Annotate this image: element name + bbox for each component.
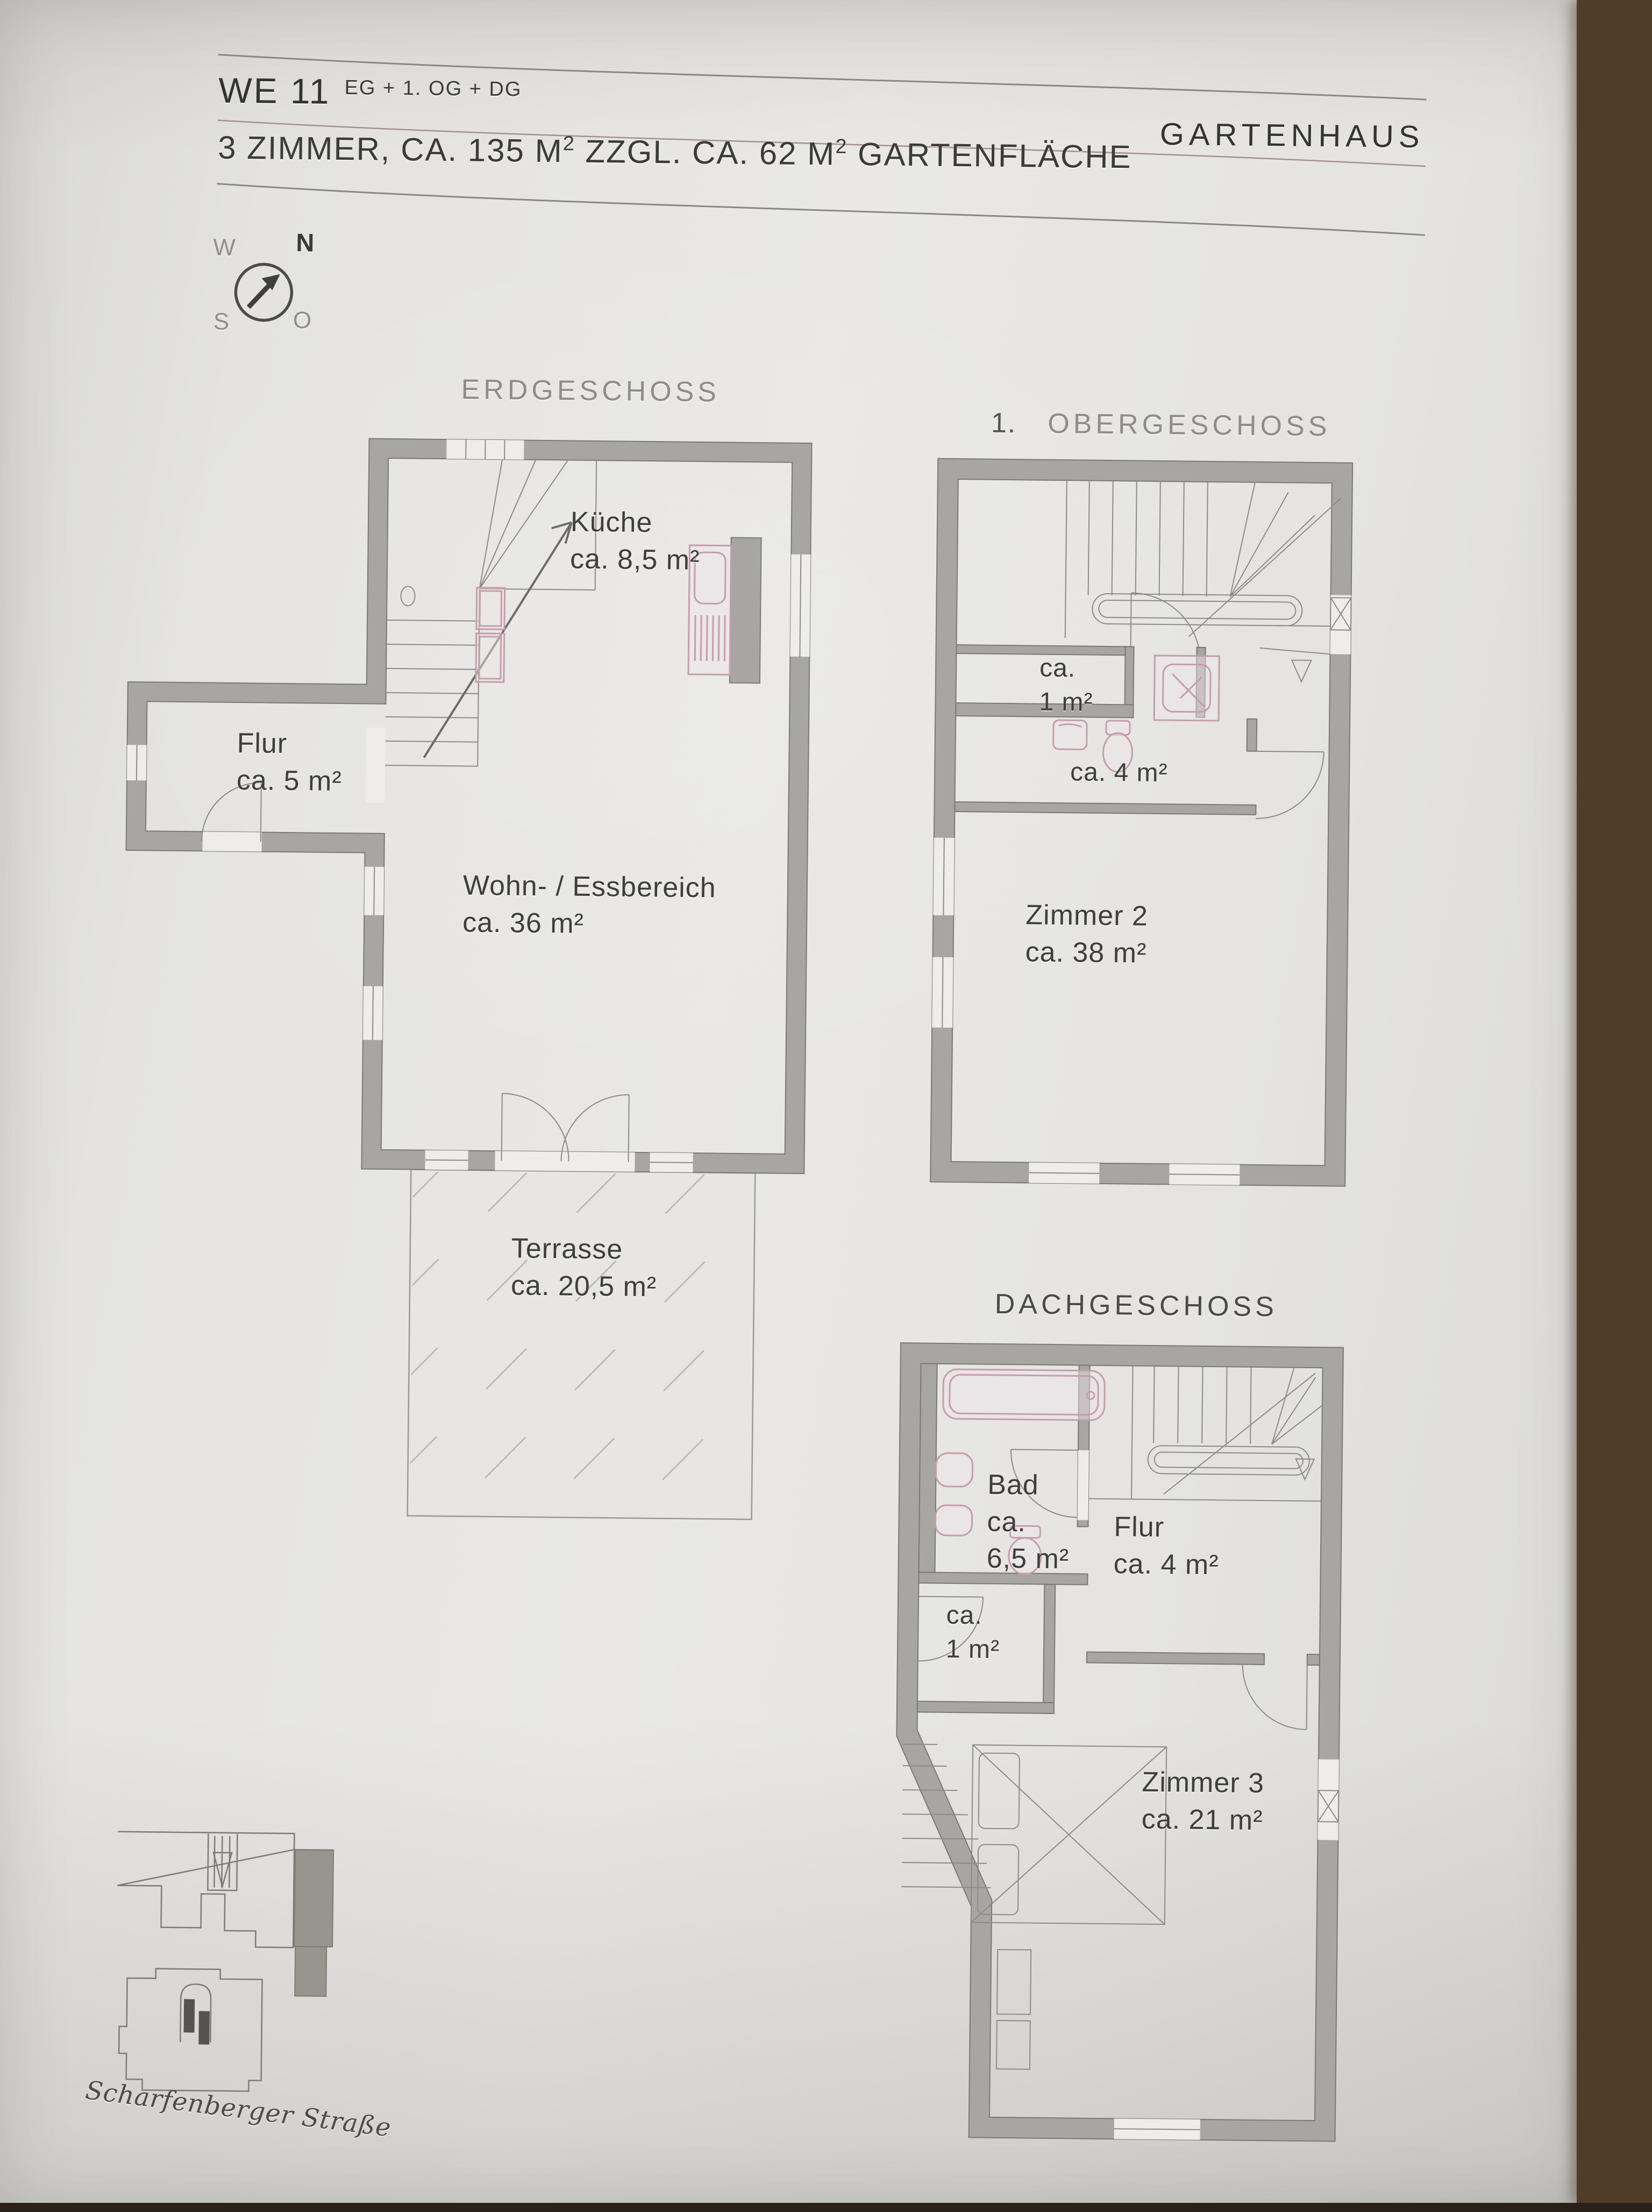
- flur-eg-area: ca. 5 m²: [237, 762, 343, 800]
- label-terrasse: Terrasse ca. 20,5 m²: [511, 1230, 658, 1305]
- terrasse-area: ca. 20,5 m²: [511, 1267, 657, 1305]
- og-abstell-line2: 1 m²: [1039, 685, 1093, 720]
- erdgeschoss-title: ERDGESCHOSS: [461, 373, 720, 408]
- label-zimmer2: Zimmer 2 ca. 38 m²: [1025, 897, 1148, 972]
- subtitle-part1: 3 ZIMMER, CA. 135 M: [218, 130, 563, 169]
- kueche-name: Küche: [571, 503, 701, 542]
- compass-east-label: O: [293, 307, 312, 334]
- subtitle-sup1: 2: [563, 132, 576, 155]
- terrasse-name: Terrasse: [511, 1230, 657, 1268]
- label-wohnbereich: Wohn- / Essbereich ca. 36 m²: [462, 867, 716, 943]
- dg-abstell-line2: 1 m²: [946, 1632, 1000, 1667]
- building-title: GARTENHAUS: [1101, 116, 1425, 155]
- dg-flur-name: Flur: [1114, 1509, 1220, 1547]
- dg-bad-name: Bad: [987, 1467, 1070, 1504]
- floorplan-sheet-content: WE 11EG + 1. OG + DG GARTENHAUS 3 ZIMMER…: [0, 0, 1652, 2212]
- unit-title: WE 11: [218, 70, 331, 111]
- subtitle-sup2: 2: [835, 136, 848, 158]
- table-edge: [1577, 0, 1652, 2203]
- photo-of-floorplan-page: WE 11EG + 1. OG + DG GARTENHAUS 3 ZIMMER…: [0, 0, 1652, 2203]
- unit-floors-superscript: EG + 1. OG + DG: [344, 76, 522, 101]
- zimmer2-area: ca. 38 m²: [1025, 934, 1148, 972]
- label-og-abstellraum: ca. 1 m²: [1039, 651, 1093, 720]
- label-dg-abstellraum: ca. 1 m²: [946, 1598, 1000, 1667]
- og-abstell-line1: ca.: [1039, 651, 1094, 686]
- compass-north-label: N: [296, 227, 315, 257]
- zimmer3-area: ca. 21 m²: [1141, 1801, 1264, 1839]
- dg-bad-line2: ca.: [987, 1503, 1070, 1541]
- site-plan-drawing: [76, 1800, 391, 2115]
- label-flur-eg: Flur ca. 5 m²: [237, 725, 343, 800]
- obergeschoss-title-line: 1.OBERGESCHOSS: [991, 407, 1331, 443]
- label-dg-bad: Bad ca. 6,5 m²: [986, 1467, 1070, 1578]
- dg-abstell-line1: ca.: [946, 1598, 1000, 1633]
- wohnbereich-area: ca. 36 m²: [462, 904, 716, 944]
- unit-title-line: WE 11EG + 1. OG + DG: [218, 70, 522, 114]
- obergeschoss-title-prefix: 1.: [991, 408, 1017, 439]
- erdgeschoss-floorplan-drawing: [115, 424, 847, 1550]
- compass-south-label: S: [213, 309, 230, 336]
- zimmer3-name: Zimmer 3: [1142, 1764, 1264, 1802]
- compass-west-label: W: [213, 234, 236, 261]
- label-zimmer3: Zimmer 3 ca. 21 m²: [1141, 1764, 1264, 1839]
- dachgeschoss-title: DACHGESCHOSS: [994, 1288, 1278, 1324]
- dg-flur-area: ca. 4 m²: [1113, 1546, 1219, 1584]
- subtitle-part3: GARTENFLÄCHE: [848, 136, 1132, 175]
- obergeschoss-title: OBERGESCHOSS: [1048, 408, 1331, 443]
- label-kueche: Küche ca. 8,5 m²: [570, 503, 701, 579]
- label-dg-flur: Flur ca. 4 m²: [1113, 1509, 1219, 1583]
- label-og-bad-area: ca. 4 m²: [1070, 755, 1168, 790]
- dg-bad-line3: 6,5 m²: [986, 1540, 1069, 1578]
- dachgeschoss-floorplan-drawing: [888, 1335, 1370, 2152]
- kueche-area: ca. 8,5 m²: [570, 540, 700, 579]
- og-bad-area: ca. 4 m²: [1070, 755, 1168, 790]
- wohnbereich-name: Wohn- / Essbereich: [463, 867, 716, 907]
- zimmer2-name: Zimmer 2: [1026, 897, 1148, 935]
- subtitle-part2: ZZGL. CA. 62 M: [575, 133, 835, 172]
- obergeschoss-floorplan-drawing: [925, 457, 1368, 1203]
- flur-eg-name: Flur: [237, 725, 343, 763]
